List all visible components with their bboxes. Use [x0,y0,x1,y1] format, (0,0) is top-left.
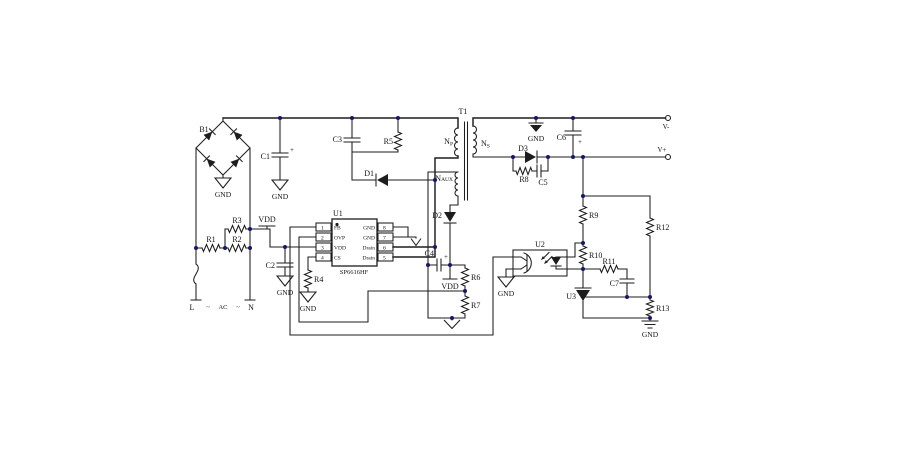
resistor-r3 [228,226,246,233]
pin-name-fb: FB [334,226,341,232]
pin-name-gnd8: GND [363,226,375,232]
ac-tilde: ~ [236,304,240,311]
vplus-label: V+ [657,146,666,154]
label-d1: D1 [364,169,374,178]
pin-num: 6 [383,246,386,252]
opto-transistor [513,255,527,271]
cap-c4 [437,259,441,271]
flyback-converter-schematic: B1 R1 R2 R3 R4 R5 R6 R7 R8 R9 R10 R11 R1… [0,0,900,453]
cap-c1 [272,153,288,157]
resistor-r10 [580,246,587,264]
label-c7: C7 [610,279,619,288]
gnd-arrow-chip [411,239,421,246]
diode-d1: D1 [364,169,388,186]
svg-text:GND: GND [272,192,289,201]
label-d2: D2 [432,211,442,220]
pin-num: 1 [321,226,324,232]
ac-neutral-label: N [248,303,254,312]
ac-line-label: L [190,303,195,312]
diode-d2: D2 [432,211,456,223]
label-t1: T1 [459,107,468,116]
label-u1: U1 [333,209,343,218]
opto-body [513,250,567,276]
resistor-r11 [600,266,618,273]
gnd-c1: GND [272,180,289,201]
gnd-earth-right: GND [642,321,659,339]
ac-source-label: AC [218,304,227,311]
wire [473,154,666,157]
resistor-r4 [305,270,312,288]
opto-envelope [524,253,531,273]
resistor-r5 [395,132,402,150]
label-r8: R8 [519,175,528,184]
resistor-r2 [228,245,246,252]
wire [245,148,255,300]
svg-text:GND: GND [277,288,294,297]
pin-name-vdd: VDD [334,246,346,252]
wire [506,269,513,277]
resistor-r13 [647,300,654,316]
pin-num: 8 [383,226,386,232]
cap-c5 [537,165,541,177]
vdd-label-left: VDD [258,215,276,224]
shunt-regulator-u3: U3 [566,288,591,301]
label-r10: R10 [589,251,602,260]
label-r13: R13 [656,304,669,313]
vminus-terminal [666,116,671,121]
c1-plus: + [290,146,294,154]
cap-c7 [620,279,634,283]
label-np: NP [444,137,453,148]
label-c5: C5 [538,178,547,187]
wire [191,284,201,300]
wire [223,118,458,128]
cap-c2 [277,263,293,267]
pin-name-cs: CS [334,256,341,262]
pin-name-gnd7: GND [363,236,375,242]
vminus-label: V- [663,123,670,131]
label-c3: C3 [333,135,342,144]
resistor-r8 [516,168,532,175]
cap-c3 [344,138,360,142]
opto-led [541,253,567,270]
label-naux: NAUX [435,174,453,183]
capacitors: + C1 C2 C3 + C4 C5 + C6 C7 [261,131,634,288]
pin-name-ovp: OVP [334,236,345,242]
fuse-squiggle [194,264,199,284]
diode-d3: D3 [518,144,537,163]
wire [393,227,416,238]
resistor-r6 [462,268,469,286]
svg-text:GND: GND [528,134,545,143]
pin-num: 4 [321,256,324,262]
pin-name-drain6: Drain [362,246,375,252]
vplus-terminal [666,155,671,160]
pin-name-drain5: Drain [362,256,375,262]
label-u2: U2 [535,240,545,249]
wire [583,157,650,297]
schematic-page: B1 R1 R2 R3 R4 R5 R6 R7 R8 R9 R10 R11 R1… [0,0,900,453]
pin-num: 2 [321,236,324,242]
svg-text:GND: GND [498,289,515,298]
c6-plus: + [578,138,582,146]
label-c1: C1 [261,152,270,161]
c4-plus: + [444,253,448,261]
label-u3: U3 [566,292,576,301]
label-r12: R12 [656,223,669,232]
label-ns: NS [481,139,490,150]
label-b1: B1 [199,125,208,134]
resistor-r1 [202,245,220,252]
diodes: D1 D2 D3 [364,144,537,223]
resistor-r12 [647,218,654,236]
gnd-opto-emitter: GND [498,277,515,298]
label-r5: R5 [384,137,393,146]
optocoupler-u2: U2 [513,240,567,276]
label-c2: C2 [266,261,275,270]
output-terminals: V- V+ [657,116,670,160]
gnd-output-rail: GND [528,125,545,143]
vdd-label-aux: VDD [441,282,459,291]
wire [473,118,666,126]
gnd-arrow-aux [444,320,460,329]
transformer-t1: T1 NP NS NAUX [435,107,490,196]
label-r1: R1 [206,235,215,244]
gnd-r4: GND [300,292,317,313]
ac-tilde: ~ [206,304,210,311]
label-r6: R6 [471,273,480,282]
label-c4: C4 [425,249,434,258]
svg-text:GND: GND [300,304,317,313]
gnd-b1: GND [215,178,232,199]
resistor-r9 [580,206,587,224]
pin-num: 3 [321,246,324,252]
cap-c6 [565,131,581,135]
label-c6: C6 [557,133,566,142]
label-r4: R4 [314,275,323,284]
svg-text:GND: GND [215,190,232,199]
drain-route [393,156,458,257]
ovp-route [299,237,465,322]
pin-num: 5 [383,256,386,262]
pin-num: 7 [383,236,386,242]
label-r3: R3 [232,216,241,225]
chip-part-number: SP6616HF [340,269,369,276]
chip-u1: 1 2 3 4 8 7 6 5 FB OVP VDD CS GND GND Dr… [316,209,393,276]
secondary-winding [473,126,477,154]
wire-net [191,118,666,335]
svg-text:GND: GND [642,330,659,339]
resistor-r7 [462,296,469,314]
label-r7: R7 [471,301,480,310]
gnd-c2: GND [277,276,294,297]
aux-winding [455,172,458,196]
label-d3: D3 [518,144,528,153]
label-r2: R2 [232,235,241,244]
primary-winding [455,128,459,156]
ac-input: L ~ AC ~ N [190,303,255,312]
bridge-rectifier-b1: B1 [199,125,242,168]
label-r11: R11 [602,257,615,266]
label-r9: R9 [589,211,598,220]
wire [583,269,650,321]
transformer-core [465,122,468,200]
wire [250,229,316,247]
